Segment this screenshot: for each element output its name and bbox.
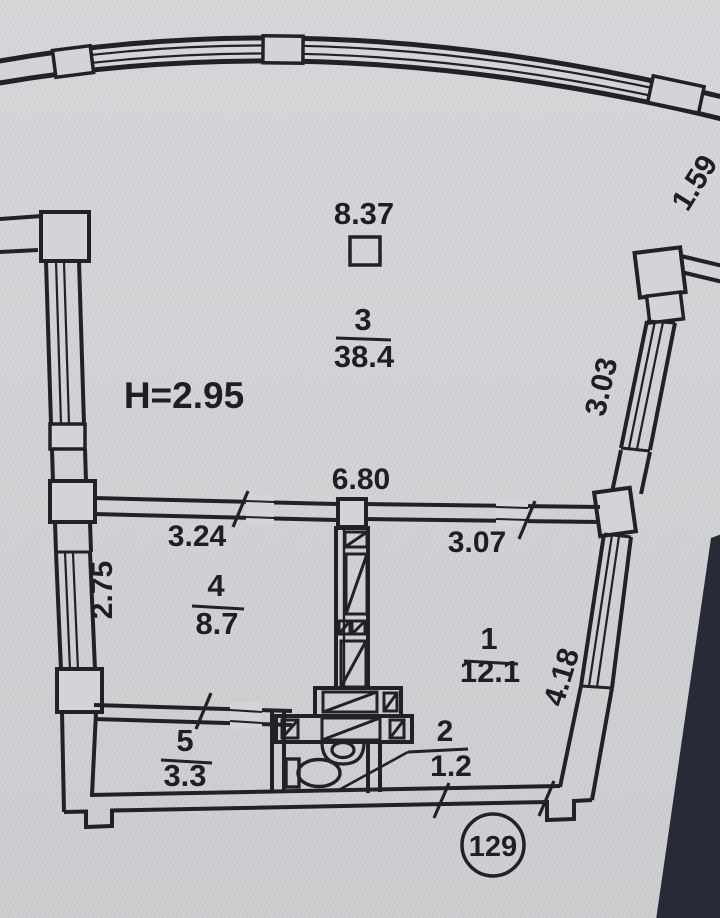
wall-line bbox=[92, 712, 96, 795]
door-opening bbox=[496, 500, 528, 526]
wall-line bbox=[592, 688, 612, 800]
room-1-number: 1 bbox=[480, 621, 497, 656]
door-opening bbox=[246, 494, 274, 524]
room-3-number: 3 bbox=[354, 302, 371, 337]
wall-line bbox=[94, 498, 336, 504]
wall-pillar bbox=[50, 481, 95, 522]
wall-line bbox=[62, 712, 64, 812]
window-right-upper bbox=[621, 321, 675, 451]
facade-pillar bbox=[648, 76, 704, 113]
window-left-upper bbox=[46, 261, 84, 424]
photo-shadow bbox=[656, 532, 720, 918]
wall-line bbox=[366, 504, 600, 507]
left-wall bbox=[0, 212, 102, 812]
vent-duct bbox=[282, 718, 404, 740]
facade-pillar bbox=[53, 46, 94, 78]
curved-facade-wall bbox=[0, 36, 720, 120]
floor-plan: 8.37 3 38.4 H=2.95 6.80 3.24 3.07 2.75 3… bbox=[0, 0, 720, 918]
dim-right-upper: 3.03 bbox=[579, 355, 624, 419]
room-1-area: 12.1 bbox=[460, 654, 520, 689]
wall-line bbox=[52, 449, 53, 482]
ceiling-height-label: H=2.95 bbox=[124, 375, 244, 416]
wall-line bbox=[641, 452, 650, 494]
wall-line bbox=[90, 522, 91, 552]
wall-line bbox=[366, 519, 600, 522]
threshold-line bbox=[246, 517, 274, 518]
room-2-area: 1.2 bbox=[430, 750, 472, 783]
apartment-number-badge: 129 bbox=[462, 814, 524, 876]
wall-block bbox=[647, 292, 684, 323]
wall-line bbox=[94, 705, 292, 711]
dim-room4-side: 2.75 bbox=[86, 561, 119, 619]
wall-line bbox=[85, 449, 86, 482]
room-4-area: 8.7 bbox=[195, 606, 238, 641]
room-3-area: 38.4 bbox=[334, 339, 395, 374]
bathroom bbox=[272, 711, 408, 793]
threshold-line bbox=[496, 519, 528, 520]
dimension-tick bbox=[233, 491, 248, 527]
room-4-number: 4 bbox=[207, 568, 225, 603]
dim-total-mid: 6.80 bbox=[332, 463, 390, 496]
wall-line bbox=[55, 522, 56, 552]
wall-pillar bbox=[41, 212, 89, 261]
room-5-number: 5 bbox=[176, 723, 193, 758]
apartment-number: 129 bbox=[469, 831, 517, 863]
wall-stub-line bbox=[681, 256, 720, 267]
threshold-line bbox=[496, 507, 528, 508]
vent-duct bbox=[323, 692, 397, 712]
dim-right-mid: 3.07 bbox=[448, 526, 506, 559]
shaft-top-block bbox=[338, 499, 366, 527]
room-5-area: 3.3 bbox=[163, 758, 206, 793]
column-symbol bbox=[350, 237, 380, 265]
window-right-lower bbox=[581, 534, 631, 688]
wall-block bbox=[50, 424, 85, 449]
service-shaft bbox=[276, 499, 412, 742]
wall-line bbox=[612, 450, 621, 492]
dim-top-right: 1.59 bbox=[665, 149, 720, 216]
toilet-icon bbox=[286, 759, 340, 787]
room-2-number: 2 bbox=[437, 715, 454, 748]
door-opening bbox=[230, 702, 262, 729]
floor-plan-drawing: 8.37 3 38.4 H=2.95 6.80 3.24 3.07 2.75 3… bbox=[0, 0, 720, 918]
dim-left-mid: 3.24 bbox=[168, 520, 227, 553]
threshold-line bbox=[246, 501, 274, 502]
wall-pillar bbox=[634, 247, 685, 297]
wall-stub-line bbox=[0, 216, 42, 219]
wall-stub-line bbox=[681, 272, 720, 283]
dim-top-width: 8.37 bbox=[334, 196, 394, 231]
wall-stub-line bbox=[0, 250, 38, 252]
facade-pillar bbox=[263, 36, 303, 63]
facade-inner-line bbox=[0, 61, 720, 120]
wall-pillar bbox=[594, 488, 636, 537]
